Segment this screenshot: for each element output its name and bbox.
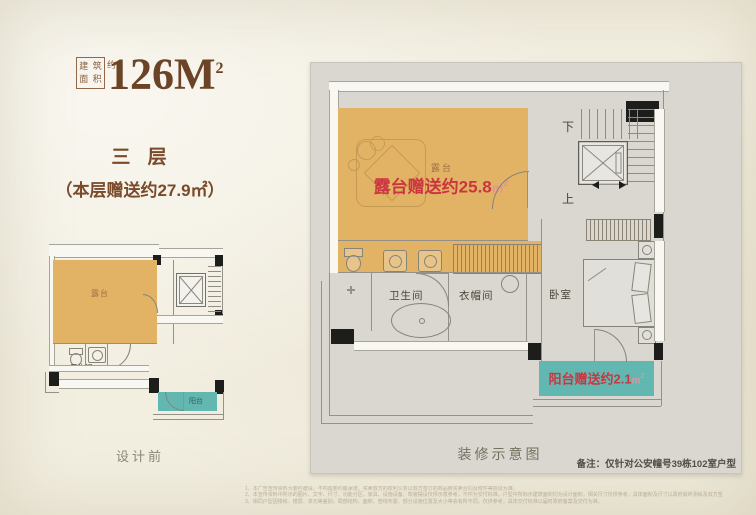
wall-line bbox=[173, 260, 174, 344]
area-superscript: 2 bbox=[216, 60, 224, 77]
wall-line bbox=[183, 392, 184, 410]
outline-line bbox=[45, 372, 46, 392]
outline-line bbox=[153, 419, 223, 420]
disclaimer-line: 3、相同户型因楼栋、楼层、单元等差别，局部结构、面积、管线布置、部分设施位置及大… bbox=[245, 499, 723, 505]
disclaimer-line: 2、本宣传资料中所示的图片、文字、尺寸、功能分区、家具、设施设备、软装摆设仅供示… bbox=[245, 492, 723, 498]
door-leaf bbox=[527, 171, 528, 208]
sink-icon bbox=[88, 347, 106, 363]
wall-line bbox=[222, 266, 223, 314]
remark-note: 备注：仅针对公安幢号39栋102室户型 bbox=[540, 456, 736, 470]
plant-icon bbox=[370, 136, 385, 151]
stool-icon bbox=[501, 275, 519, 293]
before-plan-caption: 设计前 bbox=[90, 446, 190, 465]
hanger-rail-icon bbox=[453, 244, 541, 274]
bed-icon bbox=[583, 259, 655, 327]
sink-icon bbox=[383, 250, 407, 272]
elevator-icon bbox=[176, 273, 206, 307]
balcony-label: 阳台 bbox=[189, 396, 203, 406]
door-arc-icon bbox=[416, 273, 449, 306]
wall-block bbox=[49, 370, 59, 386]
outline-line bbox=[661, 361, 662, 406]
toilet-icon bbox=[344, 248, 362, 272]
wall-band bbox=[329, 81, 669, 92]
seal-char: 积 bbox=[91, 73, 105, 86]
wall-block bbox=[149, 378, 159, 393]
outline-line bbox=[533, 399, 661, 400]
wall-band bbox=[49, 244, 159, 258]
outline-line bbox=[223, 392, 224, 420]
floor-label: 三 层 bbox=[92, 142, 192, 169]
balcony-gift-annotation: 阳台赠送约2.1m2 bbox=[539, 369, 654, 388]
wall-line bbox=[541, 219, 542, 361]
bedroom-label: 卧室 bbox=[549, 287, 572, 302]
door-leaf bbox=[416, 273, 448, 274]
door-leaf bbox=[594, 329, 595, 361]
wall-block bbox=[654, 214, 663, 238]
wall-line bbox=[53, 343, 157, 344]
bonus-note: （本层赠送约27.9㎡） bbox=[33, 176, 247, 201]
wall-block bbox=[528, 343, 541, 360]
wall-band bbox=[354, 341, 528, 351]
wall-band bbox=[159, 248, 223, 258]
seal-char: 面 bbox=[77, 73, 91, 86]
wall-block bbox=[331, 329, 354, 344]
wall-band bbox=[59, 379, 149, 389]
wall-line bbox=[371, 273, 372, 331]
plant-icon bbox=[348, 159, 360, 171]
outline-line bbox=[45, 392, 59, 393]
door-arc-icon bbox=[594, 329, 627, 362]
wall-band bbox=[654, 109, 665, 212]
closet-label: 衣帽间 bbox=[459, 288, 494, 303]
stairs-icon bbox=[208, 266, 221, 314]
outline-line bbox=[533, 406, 661, 407]
wall-band bbox=[49, 365, 149, 372]
area-title: 126M2 bbox=[108, 46, 224, 98]
bathtub-icon bbox=[391, 303, 451, 338]
terrace-area bbox=[53, 260, 157, 344]
elevator-icon bbox=[578, 141, 628, 185]
stair-arrow-right-icon bbox=[619, 181, 626, 189]
stairs-icon bbox=[628, 109, 654, 187]
pillow-icon bbox=[631, 262, 651, 293]
wall-line bbox=[526, 273, 527, 341]
wall-line bbox=[338, 240, 528, 241]
stairs-up-label: 上 bbox=[562, 190, 575, 207]
outline-line bbox=[329, 273, 330, 415]
terrace-label: 露台 bbox=[91, 288, 121, 299]
wall-band bbox=[157, 315, 223, 324]
wall-block bbox=[215, 255, 223, 266]
wall-band bbox=[654, 241, 665, 341]
wall-line bbox=[448, 273, 449, 341]
outline-line bbox=[153, 414, 223, 415]
outline-line bbox=[329, 415, 533, 416]
outline-line bbox=[321, 423, 533, 424]
seal-char: 建 bbox=[77, 60, 91, 73]
pillow-icon bbox=[631, 293, 651, 324]
before-floor-plan: 露台 卫生间 阳台 bbox=[45, 242, 235, 452]
faucet-icon bbox=[347, 286, 355, 294]
stair-arrow-left-icon bbox=[592, 181, 599, 189]
renovation-plan-card: 露台 露台赠送约25.8m2 下 上 bbox=[310, 62, 742, 474]
seal-char: 筑 bbox=[91, 60, 105, 73]
brand-seal: 建 筑 面 积 bbox=[76, 57, 105, 89]
outline-line bbox=[321, 281, 322, 423]
wall-block bbox=[654, 343, 663, 360]
stair-arrow-line bbox=[599, 184, 619, 185]
disclaimer-block: 1、本广告宣传资料为要约邀请，不构成要约或承诺，买卖双方的权利义务以双方签订的商… bbox=[245, 486, 723, 505]
stairs-down-label: 下 bbox=[562, 118, 575, 135]
sink-icon bbox=[418, 250, 442, 272]
wardrobe-icon bbox=[586, 219, 651, 241]
